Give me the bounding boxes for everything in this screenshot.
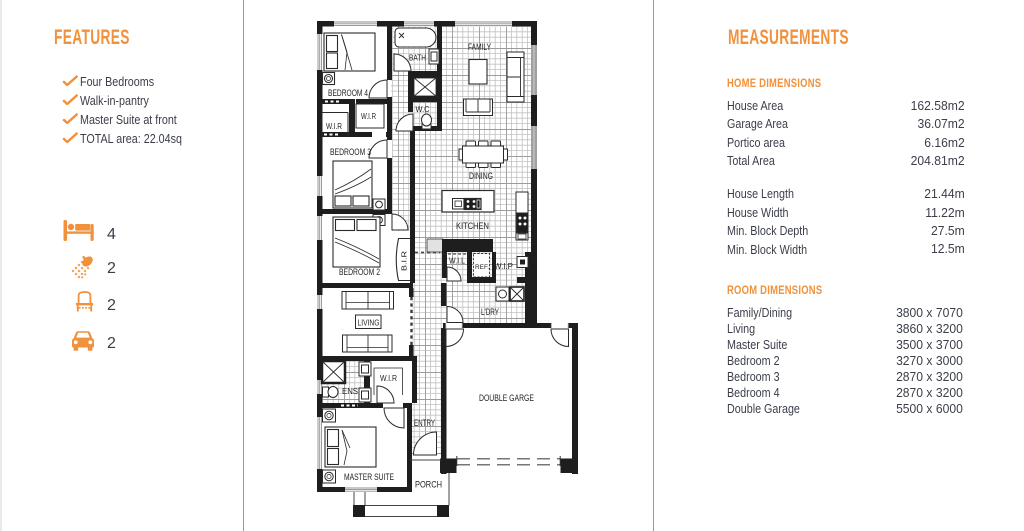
svg-text:LIVING: LIVING xyxy=(358,318,380,328)
svg-text:W.I.R: W.I.R xyxy=(361,112,376,121)
svg-text:FAMILY: FAMILY xyxy=(468,42,491,52)
svg-text:ENTRY: ENTRY xyxy=(414,418,435,428)
svg-text:BEDROOM 2: BEDROOM 2 xyxy=(339,267,380,277)
svg-text:PORCH: PORCH xyxy=(415,480,442,490)
svg-text:W.I.P: W.I.P xyxy=(494,262,513,271)
svg-text:BEDROOM 3: BEDROOM 3 xyxy=(330,147,371,157)
svg-text:DINING: DINING xyxy=(469,171,493,181)
svg-text:MASTER SUITE: MASTER SUITE xyxy=(344,472,394,482)
svg-text:BATH: BATH xyxy=(409,54,426,63)
svg-text:W.I.L: W.I.L xyxy=(449,257,465,266)
svg-text:L'DRY: L'DRY xyxy=(481,307,499,317)
svg-text:DOUBLE GARGE: DOUBLE GARGE xyxy=(479,393,534,403)
svg-text:W.I.R: W.I.R xyxy=(326,122,342,131)
svg-text:ENS: ENS xyxy=(342,387,358,396)
svg-text:W.I.R: W.I.R xyxy=(380,374,397,383)
svg-text:BEDROOM 4: BEDROOM 4 xyxy=(328,88,368,98)
svg-text:KITCHEN: KITCHEN xyxy=(456,221,489,231)
svg-text:REF.: REF. xyxy=(475,264,489,271)
svg-text:B.I.R: B.I.R xyxy=(402,251,409,271)
svg-text:W.C: W.C xyxy=(416,105,430,114)
